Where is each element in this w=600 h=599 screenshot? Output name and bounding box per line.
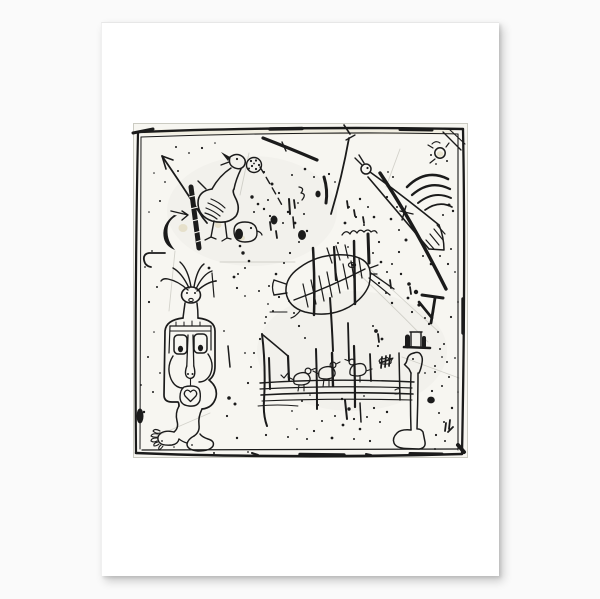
goose-eye: [236, 158, 238, 160]
gallery-background: [0, 0, 600, 599]
hatch-marks: [380, 355, 391, 368]
etching-artwork: [130, 121, 474, 465]
art-print-paper: [101, 22, 499, 576]
cone-bird-eye: [366, 167, 368, 169]
